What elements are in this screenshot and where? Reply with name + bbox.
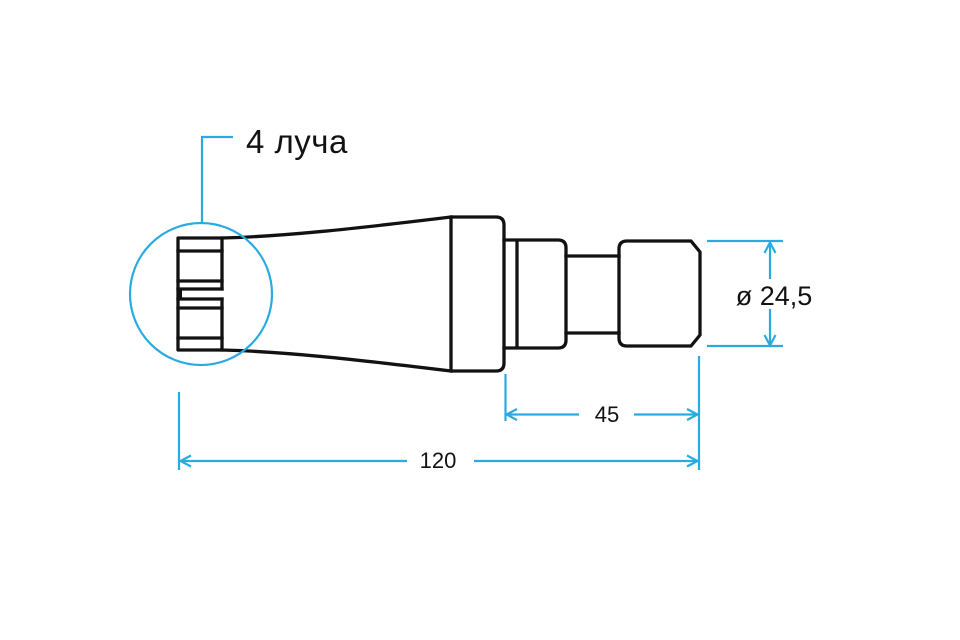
- part-outline-group: [177, 217, 701, 371]
- flange-outline: [451, 217, 504, 371]
- dimension-overall-length-value: 120: [404, 448, 472, 474]
- technical-drawing-canvas: 4 луча ø 24,5 45 120: [0, 0, 960, 640]
- callout-label: 4 луча: [246, 122, 348, 162]
- dimension-diameter-value: ø 24,5: [732, 282, 816, 310]
- collar-outline: [504, 240, 566, 348]
- callout-leader-line: [202, 137, 233, 222]
- nozzle-tip-slot-notch: [177, 290, 183, 301]
- dimension-section-length-value: 45: [577, 402, 637, 428]
- nozzle-tip-outline: [178, 238, 222, 350]
- nozzle-drawing: [0, 0, 960, 640]
- shaft-lines: [566, 256, 619, 333]
- end-cap-outline: [619, 241, 700, 346]
- detail-circle: [130, 223, 272, 365]
- body-horn-curves: [222, 217, 451, 371]
- annotation-group: [130, 137, 783, 470]
- nozzle-tip-rings: [178, 251, 222, 338]
